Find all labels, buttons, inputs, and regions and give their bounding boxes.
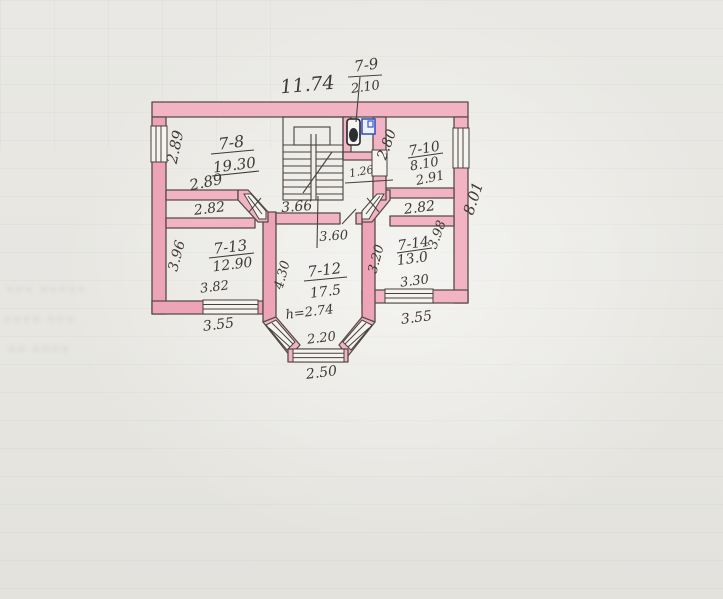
wall-under-7-10: [386, 188, 454, 198]
dim-7-14-bottom: 3.30: [399, 272, 430, 290]
staircase: [283, 117, 343, 200]
dim-7-12-bay-outer: 2.50: [304, 363, 338, 383]
dim-7-13-top: 2.82: [192, 199, 226, 219]
wall-top-7-12-stub: [356, 213, 362, 224]
dim-corridor-center: 3.66: [281, 198, 313, 216]
window-bay-bottom: [293, 349, 344, 362]
wall-713-712-shared: [263, 212, 276, 322]
dim-7-13-window: 3.55: [202, 315, 235, 335]
room-7-12-area: 17.5: [309, 282, 342, 302]
dim-7-14-window: 3.55: [400, 308, 433, 328]
window: [385, 289, 433, 303]
room-7-9-label: 7-9: [353, 54, 380, 75]
wall-top: [152, 102, 468, 117]
room-7-14-area: 13.0: [396, 249, 429, 269]
dim-7-10-door: 1.26: [348, 163, 374, 180]
window-right-wall: [453, 128, 469, 168]
dim-7-12-ceiling-height: h=2.74: [285, 302, 335, 323]
floor-plan-drawing: 11.74 7-9 2.10 2.89 7-8 19.30 2.89 2.80 …: [0, 0, 723, 599]
window-7-14: [385, 289, 433, 303]
wc-fixtures: [347, 119, 375, 145]
window: [293, 349, 344, 362]
dim-7-13-depth: 3.96: [165, 239, 189, 273]
dim-7-12-top-width: 3.60: [319, 228, 349, 245]
window: [453, 128, 469, 168]
stair-landing: [294, 127, 330, 145]
dim-top-width: 11.74: [279, 72, 335, 99]
door-leaf-7-12: [342, 209, 356, 224]
wall-wc-bottom: [343, 152, 375, 160]
dim-7-12-bay-width: 2.20: [305, 329, 337, 348]
dim-line-7-9: [348, 75, 382, 77]
dim-7-13-bottom: 3.82: [199, 278, 230, 296]
window-7-13: [203, 300, 258, 314]
dim-7-14-top: 2.82: [402, 198, 436, 218]
room-7-9-area: 2.10: [349, 78, 381, 97]
dim-tick-366: [317, 196, 318, 248]
wall-top-7-13: [166, 218, 255, 228]
window: [203, 300, 258, 314]
room-7-13-area: 12.90: [212, 255, 254, 276]
toilet-bowl-icon: [349, 128, 358, 142]
room-7-8-label: 7-8: [217, 132, 245, 154]
stair-treads-left: [283, 145, 311, 194]
